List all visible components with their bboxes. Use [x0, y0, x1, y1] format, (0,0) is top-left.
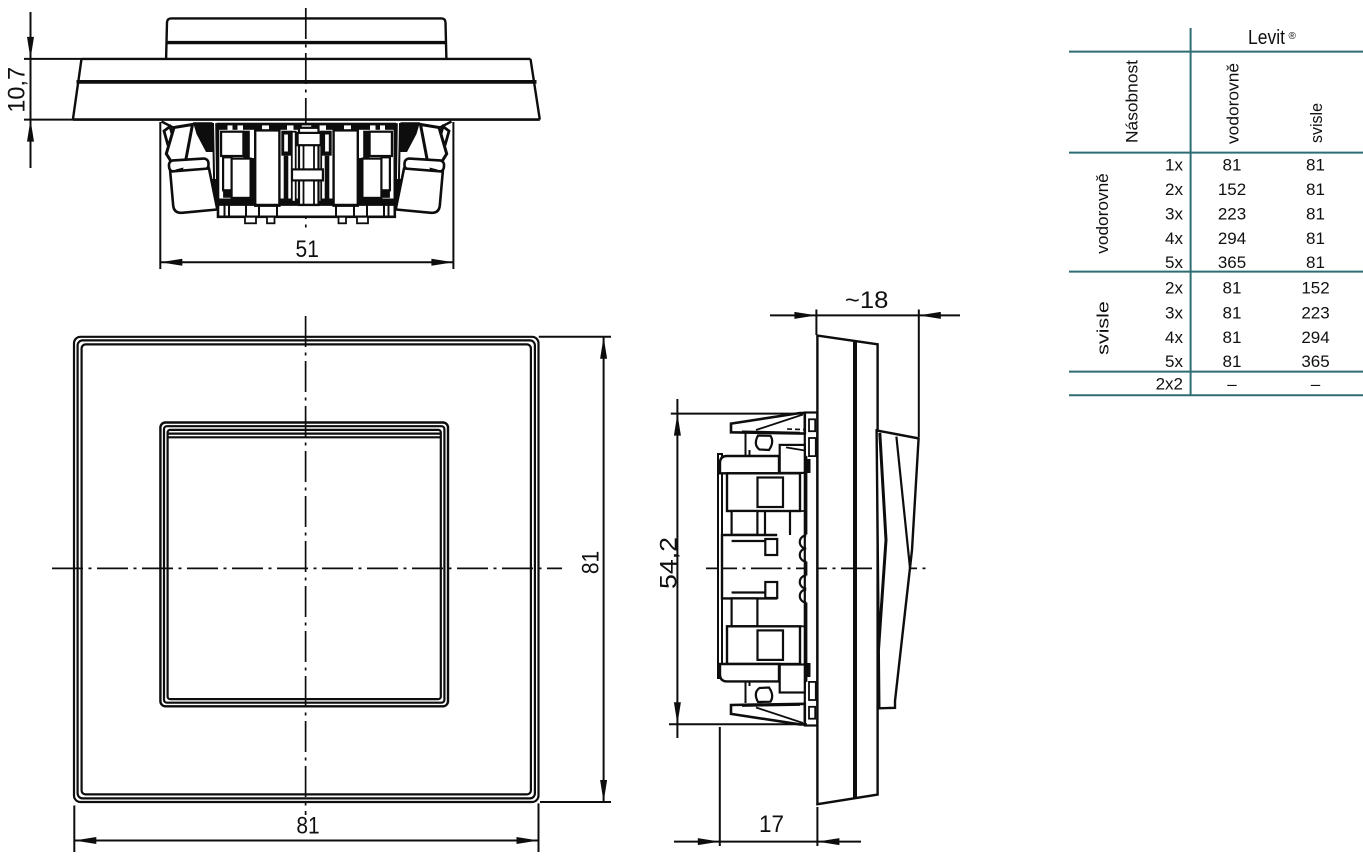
svg-text:2x2: 2x2	[1156, 375, 1183, 394]
svg-text:–: –	[1227, 375, 1237, 394]
svg-text:81: 81	[578, 551, 605, 574]
svg-text:152: 152	[1301, 279, 1329, 298]
svg-text:~18: ~18	[845, 287, 889, 314]
svg-text:51: 51	[296, 236, 319, 263]
svg-text:81: 81	[1306, 229, 1325, 248]
svg-text:81: 81	[1306, 253, 1325, 272]
svg-text:81: 81	[296, 813, 319, 840]
svg-text:svisle: svisle	[1307, 103, 1326, 143]
svg-text:365: 365	[1218, 253, 1246, 272]
svg-text:81: 81	[1223, 328, 1242, 347]
svg-text:81: 81	[1306, 205, 1325, 224]
svg-text:17: 17	[759, 811, 784, 838]
svg-text:10,7: 10,7	[4, 67, 31, 113]
svg-text:81: 81	[1223, 156, 1242, 175]
svg-text:81: 81	[1223, 352, 1242, 371]
svg-text:5x: 5x	[1165, 253, 1183, 272]
svg-text:vodorovně: vodorovně	[1224, 63, 1243, 144]
svg-text:2x: 2x	[1165, 180, 1183, 199]
svg-text:2x: 2x	[1165, 279, 1183, 298]
svg-text:54,2: 54,2	[656, 537, 683, 589]
svg-text:5x: 5x	[1165, 352, 1183, 371]
svg-text:Násobnost: Násobnost	[1123, 60, 1142, 143]
svg-text:223: 223	[1218, 205, 1246, 224]
svg-text:1x: 1x	[1165, 156, 1183, 175]
svg-text:223: 223	[1301, 304, 1329, 323]
svg-text:81: 81	[1223, 304, 1242, 323]
svg-text:81: 81	[1306, 180, 1325, 199]
svg-text:3x: 3x	[1165, 304, 1183, 323]
svg-text:–: –	[1311, 375, 1321, 394]
svg-text:vodorovně: vodorovně	[1093, 173, 1112, 254]
svg-text:81: 81	[1306, 156, 1325, 175]
svg-text:svisle: svisle	[1094, 301, 1113, 355]
svg-text:3x: 3x	[1165, 205, 1183, 224]
svg-text:365: 365	[1301, 352, 1329, 371]
svg-text:4x: 4x	[1165, 328, 1183, 347]
svg-text:Levit: Levit	[1248, 27, 1285, 49]
svg-text:294: 294	[1218, 229, 1246, 248]
svg-text:152: 152	[1218, 180, 1246, 199]
svg-text:®: ®	[1289, 31, 1297, 42]
svg-text:294: 294	[1301, 328, 1329, 347]
svg-text:4x: 4x	[1165, 229, 1183, 248]
svg-text:81: 81	[1223, 279, 1242, 298]
